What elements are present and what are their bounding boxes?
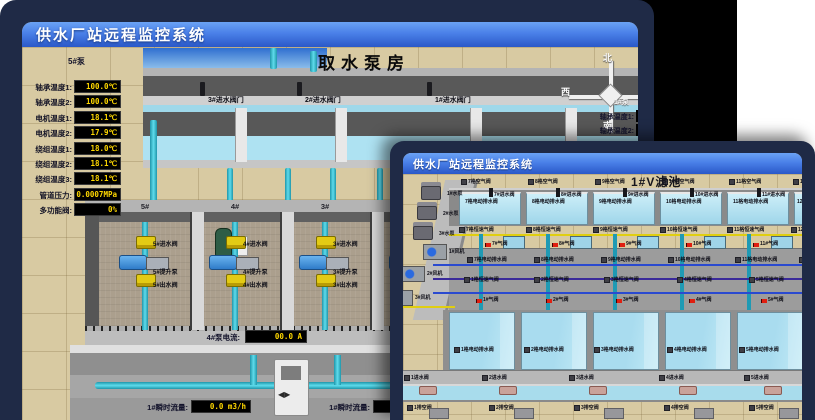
valve-label-text: 2格恒速气阀 xyxy=(541,276,569,283)
valve-label-text: 12格电动排水阀 xyxy=(797,198,802,205)
equipment-label: 1#水泵 xyxy=(447,190,463,197)
valve-icon[interactable] xyxy=(793,179,799,185)
filter-pool-window: 供水厂站远程监控系统 1#V滤池 7格空气阀8格空气阀9格空气阀10格空气阀11… xyxy=(390,141,815,420)
valve-stem-icon[interactable] xyxy=(556,188,560,197)
valve-label: 5格电动排水阀 xyxy=(739,346,779,353)
outlet-valve-label: 5#出水阀 xyxy=(153,280,178,289)
outlet-branch-pipe xyxy=(250,355,257,385)
lift-pump-icon[interactable] xyxy=(119,255,147,270)
valve-label-text: 10格电动排水阀 xyxy=(675,256,711,263)
valve-label-text: 12格空气阀 xyxy=(800,178,802,185)
equipment-label: 3#风机 xyxy=(415,294,431,301)
pump-panel-value-box: 18.1℃ xyxy=(74,157,121,170)
valve-icon[interactable] xyxy=(660,227,666,233)
valve-icon[interactable] xyxy=(461,179,467,185)
drain-pump-icon[interactable] xyxy=(764,386,782,395)
scene-title: 取水泵房 xyxy=(318,49,410,74)
right-panel-value-box xyxy=(636,110,638,122)
pump-panel-value-box: 18.1℃ xyxy=(74,172,121,185)
valve-label: 8#气阀 xyxy=(552,240,575,247)
valve-label-text: 10格恒速气阀 xyxy=(667,226,698,233)
right-panel-value-box xyxy=(636,124,638,136)
valve-label-text: 7#进水阀 xyxy=(494,191,515,198)
compass-north-label: 北 xyxy=(603,51,612,64)
filter-pool-front xyxy=(593,312,659,370)
valve-label: 9#气阀 xyxy=(619,240,642,247)
right-pump-header: 1#泵 xyxy=(614,97,629,107)
pump-panel-value-box: 17.9℃ xyxy=(74,126,121,139)
valve-label: 8格电动排水阀 xyxy=(532,198,565,205)
filter-pool-front xyxy=(737,312,802,370)
valve-icon[interactable] xyxy=(664,405,670,411)
compass-west-label: 西 xyxy=(561,85,570,98)
equipment-label-text: 1#风机 xyxy=(449,248,465,255)
valve-icon[interactable] xyxy=(593,227,599,233)
bay-id-label: 5# xyxy=(135,202,155,211)
flow-value: 0.0 m3/h xyxy=(210,402,246,411)
outlet-valve-label: 3#出水阀 xyxy=(333,280,358,289)
valve-label: 9格电动排水阀 xyxy=(601,256,641,263)
equipment-label-text: 2#风机 xyxy=(427,270,443,277)
valve-label-text: 2格电动排水阀 xyxy=(531,346,564,353)
pump-unit-icon[interactable] xyxy=(413,226,433,240)
pump-panel-label: 绕组温度3: xyxy=(26,174,72,185)
flow-value-box: 0.0 m3/h xyxy=(191,400,251,413)
valve-label: 3进水阀 xyxy=(569,374,594,381)
water-pipe-vertical xyxy=(150,120,157,205)
valve-label: 12格恒速气阀 xyxy=(791,226,802,233)
valve-label: 11格空气阀 xyxy=(729,178,761,185)
valve-label-text: 11格电动排水阀 xyxy=(733,198,768,205)
inlet-valve-label: 5#进水阀 xyxy=(153,239,178,248)
valve-label-text: 9格电动排水阀 xyxy=(599,198,632,205)
equipment-label-text: 2#水泵 xyxy=(443,210,459,217)
valve-label: 10格恒速气阀 xyxy=(660,226,698,233)
valve-label: 10#气阀 xyxy=(686,240,711,247)
pump-panel-value: 17.9℃ xyxy=(91,128,117,137)
intake-valve-icon[interactable] xyxy=(200,82,205,96)
valve-label-text: 9#气阀 xyxy=(626,240,642,247)
valve-icon[interactable] xyxy=(668,257,674,263)
pump-panel-value: 18.0℃ xyxy=(91,144,117,153)
valve-label: 7格电动排水阀 xyxy=(465,198,498,205)
valve-label: 2#气阀 xyxy=(546,296,569,303)
blower-unit-icon[interactable] xyxy=(403,290,413,306)
pump-panel-value: 100.0℃ xyxy=(86,97,117,106)
filter-pool-front xyxy=(449,312,515,370)
valve-label: 10格电动排水阀 xyxy=(668,256,711,263)
pump-panel-value: 100.0℃ xyxy=(86,82,117,91)
valve-label: 3格恒速气阀 xyxy=(604,276,639,283)
pump-panel-label: 多功能阀: xyxy=(26,205,72,216)
pump-panel-value-box: 18.0℃ xyxy=(74,142,121,155)
lift-pump-label: 4#提升泵 xyxy=(243,267,268,276)
lift-pump-icon[interactable] xyxy=(209,255,237,270)
equipment-label: 2#风机 xyxy=(427,270,443,277)
valve-icon[interactable] xyxy=(489,405,495,411)
valve-label-text: 3格恒速气阀 xyxy=(611,276,639,283)
valve-label: 11格恒速气阀 xyxy=(727,226,764,233)
valve-label-text: 7#气阀 xyxy=(492,240,508,247)
valve-icon[interactable] xyxy=(595,179,601,185)
valve-label: 7#进水阀 xyxy=(489,188,515,198)
valve-label: 5进水阀 xyxy=(744,374,769,381)
valve-label-text: 10#气阀 xyxy=(693,240,711,247)
lift-pump-label: 5#提升泵 xyxy=(153,267,178,276)
pump-panel-value-box: 18.1℃ xyxy=(74,111,121,124)
valve-label: 2格恒速气阀 xyxy=(534,276,569,283)
filter-scene: 1#V滤池 7格空气阀8格空气阀9格空气阀10格空气阀11格空气阀12格空气阀7… xyxy=(403,174,802,420)
pump5-data-panel: 5#泵 轴承温度1:100.0℃轴承温度2:100.0℃电机温度1:18.1℃电… xyxy=(24,55,136,235)
valve-icon[interactable] xyxy=(659,375,665,381)
valve-label-text: 11#进水阀 xyxy=(762,191,785,198)
alarm-flag-icon[interactable] xyxy=(761,299,767,303)
desktop: 供水厂站远程监控系统 取水泵房 3#进水阀门2#进水 xyxy=(0,0,815,420)
valve-label: 3#气阀 xyxy=(616,296,639,303)
alarm-flag-icon[interactable] xyxy=(689,299,695,303)
valve-label-text: 5格电动排水阀 xyxy=(746,346,779,353)
valve-label: 8格空气阀 xyxy=(528,178,558,185)
water-pipe-vertical xyxy=(270,48,277,69)
valve-label: 10格电动排水阀 xyxy=(666,198,702,205)
valve-label: 4格电动排水阀 xyxy=(667,346,707,353)
lift-pump-icon[interactable] xyxy=(299,255,327,270)
valve-label-text: 7格电动排水阀 xyxy=(465,198,498,205)
valve-label: 9格恒速气阀 xyxy=(593,226,628,233)
alarm-flag-icon[interactable] xyxy=(619,243,625,247)
valve-label: 5排空阀 xyxy=(749,404,774,411)
alarm-flag-icon[interactable] xyxy=(476,299,482,303)
alarm-flag-icon[interactable] xyxy=(546,299,552,303)
pump-panel-label: 绕组温度2: xyxy=(26,159,72,170)
intake-valve-label: 1#进水阀门 xyxy=(435,95,471,105)
valve-label-text: 10格电动排水阀 xyxy=(666,198,702,205)
filter-window-body: 供水厂站远程监控系统 1#V滤池 7格空气阀8格空气阀9格空气阀10格空气阀11… xyxy=(403,153,802,420)
valve-label: 9格空气阀 xyxy=(595,178,625,185)
equipment-label: 1#风机 xyxy=(449,248,465,255)
valve-label-text: 9格空气阀 xyxy=(602,178,625,185)
air-pipe-vertical xyxy=(747,234,751,310)
ground-equipment-icon xyxy=(694,408,714,419)
pump-panel-value: 18.1℃ xyxy=(91,159,117,168)
valve-icon[interactable] xyxy=(667,347,673,353)
valve-label: 12格电动排水阀 xyxy=(799,256,802,263)
valve-label-text: 10#进水阀 xyxy=(695,191,718,198)
bay-divider-wall xyxy=(370,212,384,330)
ground-equipment-icon xyxy=(429,408,449,419)
valve-icon[interactable] xyxy=(791,227,797,233)
valve-label-text: 1格电动排水阀 xyxy=(461,346,494,353)
valve-label-text: 5格恒速气阀 xyxy=(756,276,784,283)
valve-label-text: 5#气阀 xyxy=(768,296,784,303)
process-pipe xyxy=(433,264,802,266)
flow-label: 1#瞬时流量: xyxy=(88,402,188,413)
valve-label: 1#气阀 xyxy=(476,296,499,303)
valve-icon[interactable] xyxy=(569,375,575,381)
air-branch-pipe xyxy=(403,306,455,308)
valve-stem-icon[interactable] xyxy=(757,188,761,197)
valve-label-text: 1格恒速气阀 xyxy=(471,276,499,283)
valve-label-text: 9格电动排水阀 xyxy=(608,256,641,263)
pump-unit-icon[interactable] xyxy=(421,186,441,200)
valve-label-text: 2进水阀 xyxy=(489,374,507,381)
valve-label-text: 8格空气阀 xyxy=(535,178,558,185)
valve-label-text: 1#气阀 xyxy=(483,296,499,303)
valve-stem-icon[interactable] xyxy=(690,188,694,197)
intake-valve-icon[interactable] xyxy=(297,82,302,96)
blower-unit-icon[interactable] xyxy=(423,244,447,260)
process-pipe xyxy=(433,292,802,294)
valve-label: 9格电动排水阀 xyxy=(599,198,632,205)
alarm-flag-icon[interactable] xyxy=(485,243,491,247)
pump-unit-icon[interactable] xyxy=(417,206,437,220)
valve-icon[interactable] xyxy=(528,179,534,185)
scene-title: 1#V滤池 xyxy=(631,174,681,190)
valve-label: 11格电动排水阀 xyxy=(735,256,777,263)
filter-pool-front xyxy=(521,312,587,370)
valve-label-text: 7格空气阀 xyxy=(468,178,491,185)
valve-icon[interactable] xyxy=(677,277,683,283)
valve-icon[interactable] xyxy=(404,375,410,381)
ground-equipment-icon xyxy=(779,408,799,419)
valve-label: 3排空阀 xyxy=(574,404,599,411)
valve-label-text: 11格空气阀 xyxy=(736,178,761,185)
outlet-branch-pipe xyxy=(334,355,341,385)
pump-panel-value-box: 100.0℃ xyxy=(74,95,121,108)
valve-icon[interactable] xyxy=(459,227,465,233)
valve-icon[interactable] xyxy=(729,179,735,185)
valve-icon[interactable] xyxy=(482,375,488,381)
filter-pool-back xyxy=(794,192,802,225)
alarm-flag-icon[interactable] xyxy=(753,243,759,247)
valve-label: 2进水阀 xyxy=(482,374,507,381)
alarm-flag-icon[interactable] xyxy=(616,299,622,303)
bay-id-label: 3# xyxy=(315,202,335,211)
intake-valve-label: 3#进水阀门 xyxy=(208,95,244,105)
front-walkway-band xyxy=(403,370,802,385)
window-titlebar[interactable]: 供水厂站远程监控系统 xyxy=(22,22,638,47)
valve-label-text: 8#气阀 xyxy=(559,240,575,247)
valve-icon[interactable] xyxy=(727,227,733,233)
valve-icon[interactable] xyxy=(534,257,540,263)
valve-label-text: 8#进水阀 xyxy=(561,191,582,198)
drain-pump-icon[interactable] xyxy=(589,386,607,395)
ground-equipment-icon xyxy=(604,408,624,419)
pump-panel-label: 管道压力: xyxy=(26,190,72,201)
valve-icon[interactable] xyxy=(594,347,600,353)
valve-label: 3格电动排水阀 xyxy=(594,346,634,353)
bay-divider-wall xyxy=(190,212,204,330)
valve-label: 4格恒速气阀 xyxy=(677,276,712,283)
equipment-label-text: 3#风机 xyxy=(415,294,431,301)
valve-icon[interactable] xyxy=(601,257,607,263)
pump-panel-label: 轴承温度2: xyxy=(26,97,72,108)
valve-label-text: 4进水阀 xyxy=(666,374,684,381)
valve-icon[interactable] xyxy=(407,405,413,411)
valve-label-text: 9格恒速气阀 xyxy=(600,226,628,233)
valve-label: 11#进水阀 xyxy=(757,188,785,198)
valve-label-text: 12格恒速气阀 xyxy=(798,226,802,233)
valve-icon[interactable] xyxy=(735,257,741,263)
valve-label: 5格恒速气阀 xyxy=(749,276,784,283)
drain-pump-icon[interactable] xyxy=(419,386,437,395)
window-title: 供水厂站远程监控系统 xyxy=(36,24,206,45)
valve-label: 7#气阀 xyxy=(485,240,508,247)
valve-label: 4进水阀 xyxy=(659,374,684,381)
pump-panel-label: 轴承温度1: xyxy=(26,82,72,93)
window-title: 供水厂站远程监控系统 xyxy=(413,156,533,172)
valve-label: 7格恒速气阀 xyxy=(459,226,494,233)
flow-label: 1#瞬时流量: xyxy=(270,402,370,413)
pump-panel-value-box: 0% xyxy=(74,203,121,216)
valve-label-text: 9#进水阀 xyxy=(628,191,649,198)
sky xyxy=(143,48,327,70)
valve-label-text: 3进水阀 xyxy=(576,374,594,381)
valve-icon[interactable] xyxy=(604,277,610,283)
drain-pump-icon[interactable] xyxy=(499,386,517,395)
valve-label-text: 2#气阀 xyxy=(553,296,569,303)
valve-icon[interactable] xyxy=(524,347,530,353)
valve-label: 4#气阀 xyxy=(689,296,712,303)
alarm-flag-icon[interactable] xyxy=(552,243,558,247)
valve-icon[interactable] xyxy=(467,257,473,263)
right-panel-label: 轴承温度2: xyxy=(542,126,634,136)
bay-id-label: 4# xyxy=(225,202,245,211)
valve-label: 12格空气阀 xyxy=(793,178,802,185)
valve-label-text: 11#气阀 xyxy=(760,240,778,247)
valve-label: 1格电动排水阀 xyxy=(454,346,494,353)
window-titlebar[interactable]: 供水厂站远程监控系统 xyxy=(403,153,802,174)
alarm-flag-icon[interactable] xyxy=(686,243,692,247)
valve-label-text: 4格恒速气阀 xyxy=(684,276,712,283)
equipment-label: 3#水泵 xyxy=(439,230,455,237)
valve-icon[interactable] xyxy=(574,405,580,411)
valve-label: 1格恒速气阀 xyxy=(464,276,499,283)
valve-label: 8格恒速气阀 xyxy=(526,226,561,233)
valve-icon[interactable] xyxy=(739,347,745,353)
valve-stem-icon[interactable] xyxy=(623,188,627,197)
valve-label-text: 4#气阀 xyxy=(696,296,712,303)
inlet-valve-label: 4#进水阀 xyxy=(243,239,268,248)
valve-icon[interactable] xyxy=(799,257,802,263)
valve-label-text: 5排空阀 xyxy=(756,404,774,411)
valve-icon[interactable] xyxy=(534,277,540,283)
valve-label-text: 3#气阀 xyxy=(623,296,639,303)
valve-label-text: 7格恒速气阀 xyxy=(466,226,494,233)
air-pipe-vertical xyxy=(680,234,684,310)
valve-stem-icon[interactable] xyxy=(489,188,493,197)
pump-panel-value-box: 100.0℃ xyxy=(74,80,121,93)
valve-label-text: 5进水阀 xyxy=(751,374,769,381)
valve-label: 2格电动排水阀 xyxy=(524,346,564,353)
pump-panel-label: 电机温度1: xyxy=(26,113,72,124)
valve-icon[interactable] xyxy=(454,347,460,353)
valve-icon[interactable] xyxy=(526,227,532,233)
valve-label: 8#进水阀 xyxy=(556,188,582,198)
valve-label-text: 2排空阀 xyxy=(496,404,514,411)
inlet-valve-label: 3#进水阀 xyxy=(333,239,358,248)
valve-label: 4排空阀 xyxy=(664,404,689,411)
pump-panel-rows: 轴承温度1:100.0℃轴承温度2:100.0℃电机温度1:18.1℃电机温度2… xyxy=(24,55,136,235)
valve-label: 8格电动排水阀 xyxy=(534,256,574,263)
water-pipe-vertical xyxy=(310,51,317,72)
pump-panel-value: 0% xyxy=(108,205,117,214)
bay-divider-wall xyxy=(280,212,294,330)
intake-valve-icon[interactable] xyxy=(427,82,432,96)
valve-label: 7格空气阀 xyxy=(461,178,491,185)
valve-label-text: 8格电动排水阀 xyxy=(541,256,574,263)
valve-label-text: 11格恒速气阀 xyxy=(734,226,764,233)
pump-panel-label: 绕组温度1: xyxy=(26,144,72,155)
pump-panel-value: 18.1℃ xyxy=(91,174,117,183)
ground-equipment-icon xyxy=(514,408,534,419)
valve-label-text: 8格恒速气阀 xyxy=(533,226,561,233)
valve-label-text: 7格电动排水阀 xyxy=(474,256,507,263)
blower-unit-icon[interactable] xyxy=(403,266,425,282)
valve-label-text: 4格电动排水阀 xyxy=(674,346,707,353)
valve-icon[interactable] xyxy=(749,277,755,283)
valve-label: 1进水阀 xyxy=(404,374,429,381)
valve-label: 11#气阀 xyxy=(753,240,778,247)
valve-label-text: 4排空阀 xyxy=(671,404,689,411)
lift-pump-label: 3#提升泵 xyxy=(333,267,358,276)
valve-label: 7格电动排水阀 xyxy=(467,256,507,263)
valve-label: 10#进水阀 xyxy=(690,188,718,198)
filter-pool-front xyxy=(665,312,731,370)
pump-panel-label: 电机温度2: xyxy=(26,128,72,139)
valve-icon[interactable] xyxy=(744,375,750,381)
valve-label: 2排空阀 xyxy=(489,404,514,411)
drain-pump-icon[interactable] xyxy=(679,386,697,395)
valve-label: 5#气阀 xyxy=(761,296,784,303)
pump-current-value-box: 00.0 A xyxy=(245,330,307,343)
pump-current-label: 4#泵电流: xyxy=(140,332,240,343)
valve-label: 12格电动排水阀 xyxy=(797,198,802,205)
valve-label-text: 11格电动排水阀 xyxy=(742,256,777,263)
intake-valve-label: 2#进水阀门 xyxy=(305,95,341,105)
equipment-label: 2#水泵 xyxy=(443,210,459,217)
equipment-label-text: 3#水泵 xyxy=(439,230,455,237)
equipment-label-text: 1#水泵 xyxy=(447,190,463,197)
valve-icon[interactable] xyxy=(749,405,755,411)
right-panel-label: 轴承温度1: xyxy=(542,112,634,122)
valve-label-text: 8格电动排水阀 xyxy=(532,198,565,205)
valve-label-text: 3格电动排水阀 xyxy=(601,346,634,353)
valve-label-text: 3排空阀 xyxy=(581,404,599,411)
valve-label-text: 1进水阀 xyxy=(411,374,429,381)
pump-panel-value: 18.1℃ xyxy=(91,113,117,122)
pump-panel-value-box: 0.0007MPa xyxy=(74,188,121,201)
valve-label: 11格电动排水阀 xyxy=(733,198,768,205)
pump-current-value: 00.0 A xyxy=(275,332,302,341)
outlet-valve-label: 4#出水阀 xyxy=(243,280,268,289)
pump-panel-value: 0.0007MPa xyxy=(76,190,117,199)
valve-icon[interactable] xyxy=(464,277,470,283)
